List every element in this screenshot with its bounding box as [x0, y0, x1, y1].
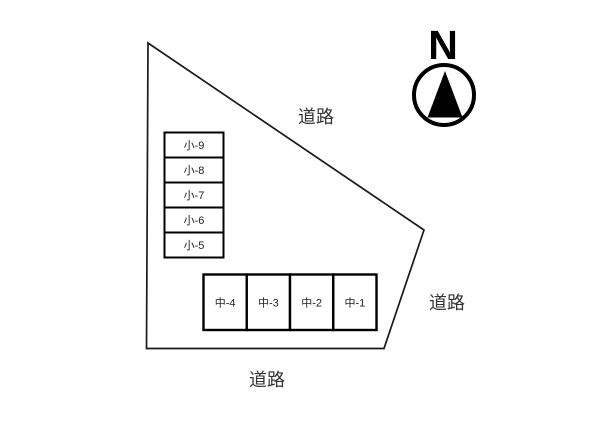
road-label-right: 道路	[429, 293, 465, 313]
road-label-bottom: 道路	[249, 370, 285, 390]
parking-space-small-7-label: 小-7	[184, 189, 205, 202]
parking-space-medium-4-label: 中-4	[215, 297, 236, 310]
medium-space-row: 中-4 中-3 中-2 中-1	[204, 275, 377, 331]
parking-space-small-9-label: 小-9	[184, 139, 205, 152]
compass-north-label: N	[428, 22, 458, 68]
parking-space-medium-1-label: 中-1	[345, 297, 366, 310]
small-space-column: 小-9 小-8 小-7 小-6 小-5	[165, 133, 224, 258]
site-plan-canvas: 小-9 小-8 小-7 小-6 小-5 中-4 中-3 中-2 中-1 道路 道…	[0, 0, 615, 427]
parking-space-small-8-label: 小-8	[184, 164, 205, 177]
parking-space-medium-2-label: 中-2	[301, 297, 322, 310]
parking-space-small-5-label: 小-5	[184, 239, 205, 252]
parking-space-small-6-label: 小-6	[184, 214, 205, 227]
compass-north-arrow-icon	[428, 71, 463, 118]
compass-rose: N	[414, 22, 474, 125]
site-plan-drawing: 小-9 小-8 小-7 小-6 小-5 中-4 中-3 中-2 中-1 道路 道…	[0, 0, 615, 427]
parking-space-medium-3-label: 中-3	[258, 297, 279, 310]
road-label-top: 道路	[298, 107, 334, 127]
